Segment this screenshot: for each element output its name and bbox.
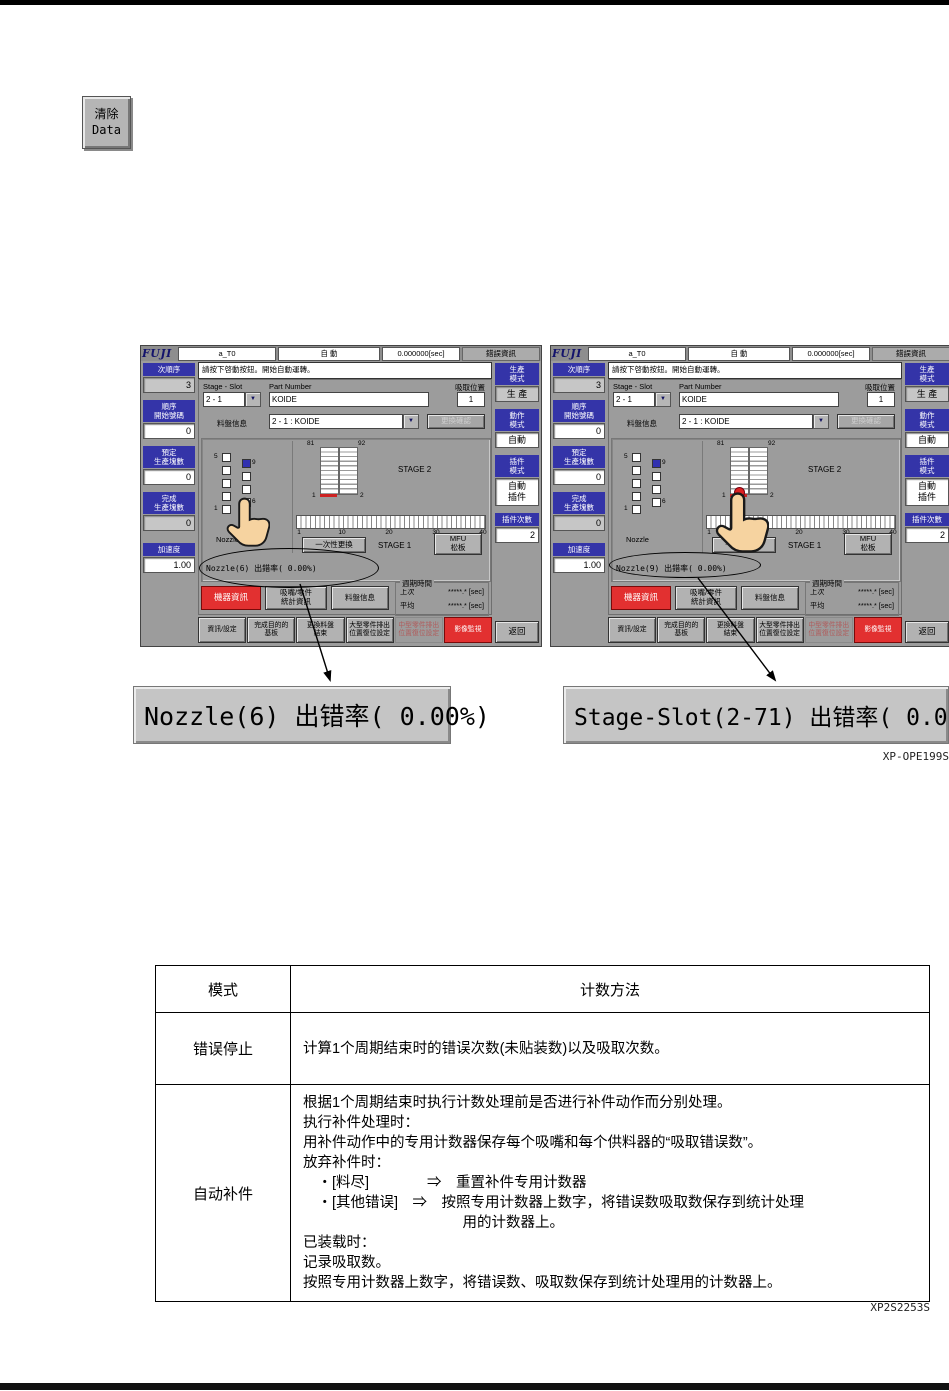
bottom-button-row: 資訊/設定 完成目的的 基板 更換料盤 結束 大型零件排出 位置復位設定 中型零… — [198, 617, 492, 643]
message-bar: 請按下啓動按鈕。開始自動運轉。 — [198, 362, 492, 379]
stage-slot-value: 2 - 1 — [203, 392, 245, 407]
cycle-avg-label: 平均 — [810, 601, 824, 611]
planned-boards-value[interactable]: 0 — [553, 469, 605, 485]
nozzle-checkbox-4[interactable] — [632, 466, 641, 475]
finished-boards-value: 0 — [143, 515, 195, 531]
cycle-avg-value: *****.* [sec] — [858, 601, 894, 611]
insert-count-value[interactable]: 2 — [905, 527, 949, 543]
slot-92-label: 92 — [358, 440, 365, 447]
part-number-field[interactable]: KOIDE — [679, 392, 839, 407]
slot-tick-20: 20 — [795, 529, 802, 536]
count-method-table: 模式 计数方法 错误停止 计算1个周期结束时的错误次数(未贴装数)以及吸取次数。… — [155, 965, 930, 1302]
start-number-label: 順序 開始號碼 — [553, 400, 605, 422]
panel-divider — [702, 441, 703, 553]
nozzle-checkbox-5[interactable] — [632, 453, 641, 462]
planned-boards-label: 預定 生產塊數 — [553, 446, 605, 468]
cycle-time-title: 週期時間 — [400, 578, 434, 589]
page-bottom-rule — [0, 1383, 949, 1390]
nozzle-checkbox-2[interactable] — [632, 492, 641, 501]
insert-mode-value: 自動 插件 — [905, 478, 949, 506]
nozzle-number-5: 5 — [624, 453, 628, 460]
slot-tick-20: 20 — [385, 529, 392, 536]
tray-exchange-end-button[interactable]: 更換料盤 結束 — [296, 617, 344, 643]
left-sidebar: 次順序 3 順序 開始號碼 0 預定 生產塊數 0 完成 生產塊數 0 加速度 … — [551, 361, 607, 645]
one-touch-exchange-button[interactable]: 一次性更換 — [712, 537, 776, 553]
insert-count-value[interactable]: 2 — [495, 527, 539, 543]
run-mode-field: 自 動 — [278, 347, 380, 361]
machine-screenshot-left: FUJI a_T0 自 動 0.000000[sec] 錯誤資訊 次順序 3 順… — [140, 345, 542, 647]
nozzle-caption: Nozzle — [216, 535, 239, 544]
machine-info-button[interactable]: 機器資訊 — [201, 586, 261, 610]
slot-81-label: 81 — [307, 440, 314, 447]
production-mode-label: 生產 模式 — [905, 363, 949, 385]
nozzle-checkbox-3[interactable] — [632, 479, 641, 488]
machine-screenshot-right: FUJI a_T0 自 動 0.000000[sec] 錯誤資訊 次順序 3 順… — [550, 345, 949, 647]
back-button[interactable]: 返回 — [905, 621, 949, 643]
mode-error-stop: 错误停止 — [156, 1013, 291, 1085]
fuji-logo: FUJI — [142, 347, 176, 361]
nozzle-checkbox-9-selected[interactable] — [242, 459, 251, 468]
nozzle-number-9: 9 — [662, 459, 666, 466]
acceleration-value[interactable]: 1.00 — [553, 557, 605, 573]
stage-slot-label: Stage - Slot — [613, 382, 652, 391]
cycle-time-readout: 0.000000[sec] — [382, 347, 460, 361]
start-number-value[interactable]: 0 — [143, 423, 195, 439]
large-part-eject-reset-button[interactable]: 大型零件排出 位置復位設定 — [756, 617, 804, 643]
next-sequence-label: 次順序 — [553, 363, 605, 376]
job-name-field[interactable]: a_T0 — [588, 347, 686, 361]
tray-info-dropdown[interactable]: 2 - 1 : KOIDE ▼ — [269, 414, 419, 429]
nozzle-checkbox-9-selected[interactable] — [652, 459, 661, 468]
nozzle-number-1: 1 — [214, 505, 218, 512]
nozzle-number-6: 6 — [252, 498, 256, 505]
tray-info-label: 料盤信息 — [627, 418, 657, 429]
finished-boards-label: 完成 生產塊數 — [143, 492, 195, 514]
clear-data-label-cn: 清除 — [94, 107, 118, 123]
chevron-down-icon[interactable]: ▼ — [813, 414, 829, 429]
exchange-confirm-button: 更換確認 — [837, 414, 895, 429]
main-panel: Stage - Slot 2 - 1 ▼ Part Number KOIDE 吸… — [608, 379, 902, 615]
production-mode-label: 生產 模式 — [495, 363, 539, 385]
insert-mode-label: 插件 模式 — [905, 455, 949, 477]
exchange-confirm-button: 更換確認 — [427, 414, 485, 429]
nozzle-caption: Nozzle — [626, 535, 649, 544]
image-monitor-button[interactable]: 影像監視 — [854, 617, 902, 643]
selected-slot-highlight — [320, 494, 337, 497]
tray-info-value: 2 - 1 : KOIDE — [679, 414, 813, 429]
nozzle-number-9: 9 — [252, 459, 256, 466]
part-number-label: Part Number — [679, 382, 722, 391]
table-row: 自动补件 根据1个周期结束时执行计数处理前是否进行补件动作而分别处理。 执行补件… — [156, 1085, 930, 1302]
next-sequence-value: 3 — [553, 377, 605, 393]
slot-tick-10: 10 — [338, 529, 345, 536]
nozzle-part-stats-button[interactable]: 吸嘴/零件 統計資訊 — [265, 586, 327, 610]
slot-tick-10: 10 — [748, 529, 755, 536]
error-info-button[interactable]: 錯誤資訊 — [872, 347, 949, 361]
stage-slot-value: 2 - 1 — [613, 392, 655, 407]
nozzle-checkbox-3[interactable] — [222, 479, 231, 488]
nozzle-checkbox-7[interactable] — [652, 485, 661, 494]
status-line: Nozzle(9) 出錯率( 0.00%) — [616, 563, 727, 574]
slot-2-label: 2 — [360, 492, 364, 499]
run-mode-field: 自 動 — [688, 347, 790, 361]
right-sidebar: 生產 模式 生 產 動作 模式 自動 插件 模式 自動 插件 插件次數 2 返回 — [493, 361, 541, 645]
stage-slot-dropdown[interactable]: 2 - 1 ▼ — [613, 392, 671, 407]
tray-info-label: 料盤信息 — [217, 418, 247, 429]
next-sequence-label: 次順序 — [143, 363, 195, 376]
stage-slot-label: Stage - Slot — [203, 382, 242, 391]
stage-slot-dropdown[interactable]: 2 - 1 ▼ — [203, 392, 261, 407]
slot-1-label: 1 — [312, 492, 316, 499]
nozzle-checkbox-1[interactable] — [222, 505, 231, 514]
tray-exchange-end-button[interactable]: 更換料盤 結束 — [706, 617, 754, 643]
slot-1-label: 1 — [722, 492, 726, 499]
nozzle-checkbox-5[interactable] — [222, 453, 231, 462]
action-mode-label: 動作 模式 — [495, 409, 539, 431]
stage2-slot-column-right[interactable] — [339, 447, 358, 495]
figure-code-ope199s: XP-OPE199S — [563, 750, 949, 763]
table-row: 错误停止 计算1个周期结束时的错误次数(未贴装数)以及吸取次数。 — [156, 1013, 930, 1085]
message-bar: 請按下啓動按鈕。開始自動運轉。 — [608, 362, 902, 379]
mid-part-eject-reset-button-disabled: 中型零件排出 位置復位設定 — [395, 617, 443, 643]
cycle-avg-label: 平均 — [400, 601, 414, 611]
status-line: Nozzle(6) 出錯率( 0.00%) — [206, 563, 317, 574]
stage1-caption: STAGE 1 — [378, 541, 411, 550]
insert-count-label: 插件次數 — [495, 513, 539, 526]
production-mode-value: 生 產 — [495, 386, 539, 402]
finish-target-board-button[interactable]: 完成目的的 基板 — [247, 617, 295, 643]
stage1-caption: STAGE 1 — [788, 541, 821, 550]
mid-part-eject-reset-button-disabled: 中型零件排出 位置復位設定 — [805, 617, 853, 643]
slot-92-label: 92 — [768, 440, 775, 447]
right-sidebar: 生產 模式 生 產 動作 模式 自動 插件 模式 自動 插件 插件次數 2 返回 — [903, 361, 949, 645]
stage2-caption: STAGE 2 — [398, 465, 431, 474]
planned-boards-value[interactable]: 0 — [143, 469, 195, 485]
production-mode-value: 生 產 — [905, 386, 949, 402]
machine-titlebar: FUJI a_T0 自 動 0.000000[sec] 錯誤資訊 — [551, 346, 949, 361]
mfu-release-button[interactable]: MFU 松板 — [434, 533, 482, 555]
nozzle-checkbox-6[interactable] — [242, 498, 251, 507]
cycle-last-value: *****.* [sec] — [858, 587, 894, 597]
nozzle-number-1: 1 — [624, 505, 628, 512]
callout-nozzle-error-rate: Nozzle(6) 出错率( 0.00%) — [133, 686, 451, 744]
slot-tick-1: 1 — [297, 529, 301, 536]
desc-error-stop: 计算1个周期结束时的错误次数(未贴装数)以及吸取次数。 — [291, 1013, 930, 1085]
nozzle-number-6: 6 — [662, 498, 666, 505]
job-name-field[interactable]: a_T0 — [178, 347, 276, 361]
bottom-button-row: 資訊/設定 完成目的的 基板 更換料盤 結束 大型零件排出 位置復位設定 中型零… — [608, 617, 902, 643]
nozzle-number-5: 5 — [214, 453, 218, 460]
machine-titlebar: FUJI a_T0 自 動 0.000000[sec] 錯誤資訊 — [141, 346, 541, 361]
pressed-slot-dot — [734, 487, 745, 498]
pickup-position-value: 1 — [457, 392, 485, 407]
finished-boards-value: 0 — [553, 515, 605, 531]
cycle-time-title: 週期時間 — [810, 578, 844, 589]
nozzle-checkbox-4[interactable] — [222, 466, 231, 475]
stage2-caption: STAGE 2 — [808, 465, 841, 474]
tray-info-dropdown[interactable]: 2 - 1 : KOIDE ▼ — [679, 414, 829, 429]
cycle-last-value: *****.* [sec] — [448, 587, 484, 597]
image-monitor-button[interactable]: 影像監視 — [444, 617, 492, 643]
error-info-button[interactable]: 錯誤資訊 — [462, 347, 540, 361]
next-sequence-value: 3 — [143, 377, 195, 393]
action-mode-value: 自動 — [905, 432, 949, 448]
slot-2-label: 2 — [770, 492, 774, 499]
back-button[interactable]: 返回 — [495, 621, 539, 643]
cycle-time-readout: 0.000000[sec] — [792, 347, 870, 361]
stage2-slot-column-right[interactable] — [749, 447, 768, 495]
nozzle-checkbox-8[interactable] — [242, 472, 251, 481]
stage-panel: 5 1 9 6 Nozzle 81 — [611, 438, 901, 582]
chevron-down-icon[interactable]: ▼ — [403, 414, 419, 429]
machine-info-button[interactable]: 機器資訊 — [611, 586, 671, 610]
nozzle-checkbox-2[interactable] — [222, 492, 231, 501]
info-settings-button[interactable]: 資訊/設定 — [198, 617, 246, 643]
part-number-field[interactable]: KOIDE — [269, 392, 429, 407]
large-part-eject-reset-button[interactable]: 大型零件排出 位置復位設定 — [346, 617, 394, 643]
acceleration-value[interactable]: 1.00 — [143, 557, 195, 573]
figure-code-xp2s2253s: XP2S2253S — [155, 1301, 930, 1314]
pickup-position-value: 1 — [867, 392, 895, 407]
slot-tick-1: 1 — [707, 529, 711, 536]
info-settings-button[interactable]: 資訊/設定 — [608, 617, 656, 643]
nozzle-checkbox-1[interactable] — [632, 505, 641, 514]
fuji-logo: FUJI — [552, 347, 586, 361]
table-header-mode: 模式 — [156, 966, 291, 1013]
nozzle-checkbox-7[interactable] — [242, 485, 251, 494]
mfu-release-button[interactable]: MFU 松板 — [844, 533, 892, 555]
start-number-value[interactable]: 0 — [553, 423, 605, 439]
chevron-down-icon[interactable]: ▼ — [245, 392, 261, 407]
tray-info-button[interactable]: 料盤信息 — [331, 586, 389, 610]
slot-81-label: 81 — [717, 440, 724, 447]
insert-mode-value: 自動 插件 — [495, 478, 539, 506]
action-mode-label: 動作 模式 — [905, 409, 949, 431]
insert-count-label: 插件次數 — [905, 513, 949, 526]
left-sidebar: 次順序 3 順序 開始號碼 0 預定 生產塊數 0 完成 生產塊數 0 加速度 … — [141, 361, 197, 645]
planned-boards-label: 預定 生產塊數 — [143, 446, 195, 468]
table-header-method: 计数方法 — [291, 966, 930, 1013]
mode-auto-replenish: 自动补件 — [156, 1085, 291, 1302]
cycle-avg-value: *****.* [sec] — [448, 601, 484, 611]
part-number-label: Part Number — [269, 382, 312, 391]
panel-divider — [292, 441, 293, 553]
tray-info-button[interactable]: 料盤信息 — [741, 586, 799, 610]
cycle-time-group: 週期時間 上次 *****.* [sec] 平均 *****.* [sec] — [805, 582, 899, 616]
insert-mode-label: 插件 模式 — [495, 455, 539, 477]
finished-boards-label: 完成 生產塊數 — [553, 492, 605, 514]
stage2-slot-column-left[interactable] — [320, 447, 339, 495]
one-touch-exchange-button[interactable]: 一次性更換 — [302, 537, 366, 553]
finish-target-board-button[interactable]: 完成目的的 基板 — [657, 617, 705, 643]
nozzle-checkbox-6[interactable] — [652, 498, 661, 507]
callout-stage-slot-error-rate: Stage-Slot(2-71) 出错率( 0.00%) — [563, 686, 949, 744]
desc-auto-replenish: 根据1个周期结束时执行计数处理前是否进行补件动作而分别处理。 执行补件处理时： … — [291, 1085, 930, 1302]
nozzle-checkbox-8[interactable] — [652, 472, 661, 481]
cycle-time-group: 週期時間 上次 *****.* [sec] 平均 *****.* [sec] — [395, 582, 489, 616]
stage1-slot-bar[interactable] — [706, 515, 896, 529]
stage1-slot-bar[interactable] — [296, 515, 486, 529]
action-mode-value: 自動 — [495, 432, 539, 448]
clear-data-button[interactable]: 清除 Data — [82, 96, 131, 149]
tray-info-value: 2 - 1 : KOIDE — [269, 414, 403, 429]
clear-data-label-en: Data — [92, 123, 121, 139]
acceleration-label: 加速度 — [553, 543, 605, 556]
main-panel: Stage - Slot 2 - 1 ▼ Part Number KOIDE 吸… — [198, 379, 492, 615]
acceleration-label: 加速度 — [143, 543, 195, 556]
chevron-down-icon[interactable]: ▼ — [655, 392, 671, 407]
page-top-rule — [0, 0, 949, 5]
start-number-label: 順序 開始號碼 — [143, 400, 195, 422]
nozzle-part-stats-button[interactable]: 吸嘴/零件 統計資訊 — [675, 586, 737, 610]
stage-panel: 5 1 9 6 Nozzle 81 — [201, 438, 491, 582]
